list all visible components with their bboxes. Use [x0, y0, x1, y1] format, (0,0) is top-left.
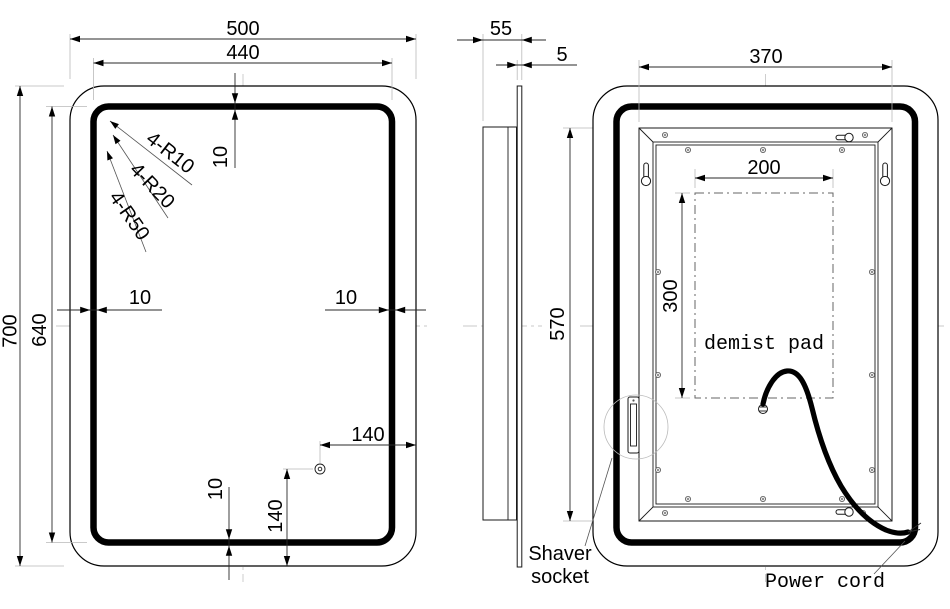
dim-label-200: 200 — [747, 157, 780, 179]
dim-glass-thickness: 5 — [496, 44, 577, 68]
drawing-sheet: 500 440 700 640 10 — [0, 0, 950, 609]
mirror-outline-front — [70, 86, 416, 566]
shaver-socket-label-line1: Shaver — [528, 543, 592, 565]
front-view: 500 440 700 640 10 — [0, 18, 430, 582]
mirror-technical-drawing: 500 440 700 640 10 — [0, 0, 950, 609]
dim-label-140-h: 140 — [351, 424, 384, 446]
dim-label-640: 640 — [29, 313, 51, 346]
dim-label-10-top: 10 — [210, 146, 232, 168]
demist-pad-label: demist pad — [704, 333, 824, 356]
dim-label-300: 300 — [660, 279, 682, 312]
dim-label-10-left: 10 — [129, 287, 151, 309]
dim-label-5: 5 — [556, 44, 567, 66]
dim-led-height: 640 — [29, 107, 55, 543]
back-frame — [639, 128, 892, 521]
dim-label-140-v: 140 — [265, 499, 287, 532]
dim-overall-height: 700 — [0, 86, 23, 566]
dim-label-500: 500 — [226, 18, 259, 40]
side-frame-profile — [483, 127, 517, 520]
shaver-socket-label-line2: socket — [531, 566, 589, 588]
dim-label-10-right: 10 — [335, 287, 357, 309]
side-extension-lines — [483, 34, 522, 121]
dim-label-700: 700 — [0, 314, 22, 347]
dim-label-440: 440 — [226, 42, 259, 64]
dim-depth: 55 — [457, 18, 546, 43]
power-cord-label: Power cord — [765, 571, 885, 594]
dim-label-10-bottom: 10 — [205, 478, 227, 500]
dim-label-570: 570 — [547, 307, 569, 340]
dim-label-55: 55 — [490, 18, 512, 40]
dim-led-width: 440 — [94, 42, 393, 66]
side-glass-panel — [517, 86, 522, 567]
dim-overall-width: 500 — [70, 18, 416, 42]
dim-label-370: 370 — [749, 46, 782, 68]
